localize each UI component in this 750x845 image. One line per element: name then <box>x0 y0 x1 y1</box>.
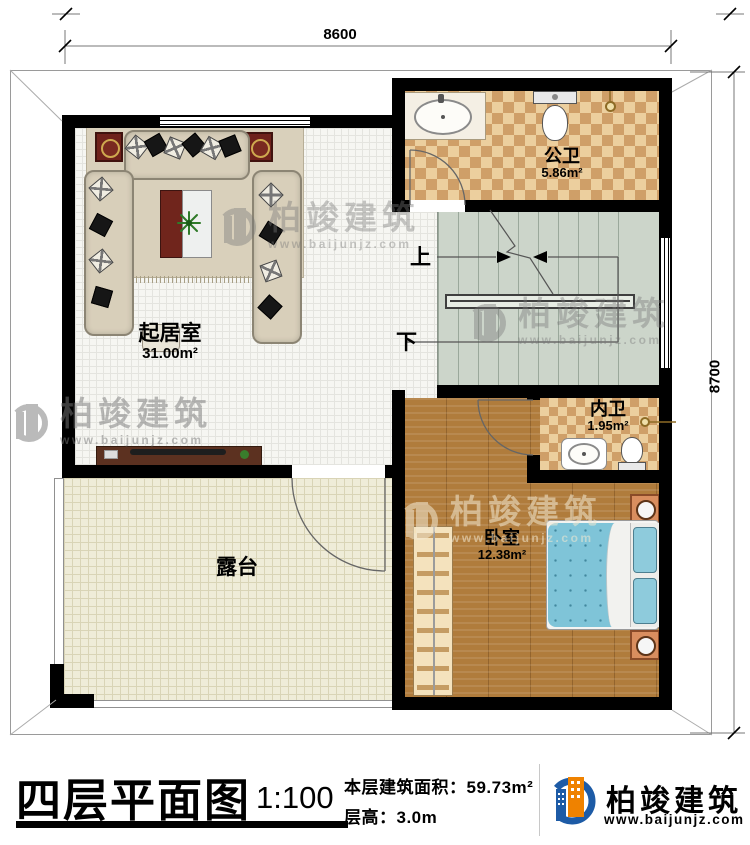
inner-bath-label: 内卫 1.95m² <box>548 399 668 434</box>
floor-height-text: 层高：3.0m <box>344 803 437 828</box>
floor-area-text: 本层建筑面积：59.73m² <box>344 773 533 798</box>
company-logo-icon <box>547 768 601 830</box>
floor-plan-page: 8600 8700 起居室 31.00m² 公卫 5.86m² 内卫 1.95m… <box>0 0 750 845</box>
room-name: 内卫 <box>548 399 668 419</box>
room-name: 起居室 <box>100 322 240 346</box>
room-name: 露台 <box>175 556 299 580</box>
terrace-label: 露台 <box>175 556 299 580</box>
room-area: 31.00m² <box>100 346 240 363</box>
room-area: 5.86m² <box>502 166 622 181</box>
room-area: 1.95m² <box>548 419 668 434</box>
living-room-label: 起居室 31.00m² <box>100 322 240 362</box>
dimension-top: 8600 <box>295 26 385 43</box>
plan-title: 四层平面图 <box>16 764 251 829</box>
company-website: www.baijunjz.com <box>604 812 745 827</box>
title-underline <box>16 821 348 828</box>
stairs-down-label: 下 <box>396 326 417 356</box>
room-name: 卧室 <box>440 528 564 548</box>
room-area: 12.38m² <box>440 548 564 563</box>
room-name: 公卫 <box>502 146 622 166</box>
bedroom-label: 卧室 12.38m² <box>440 528 564 563</box>
public-bath-label: 公卫 5.86m² <box>502 146 622 181</box>
dimension-right: 8700 <box>707 345 724 409</box>
plan-scale: 1:100 <box>256 780 334 816</box>
annotation-layer <box>0 0 750 760</box>
title-divider <box>539 764 540 836</box>
stairs-up-label: 上 <box>410 241 431 271</box>
